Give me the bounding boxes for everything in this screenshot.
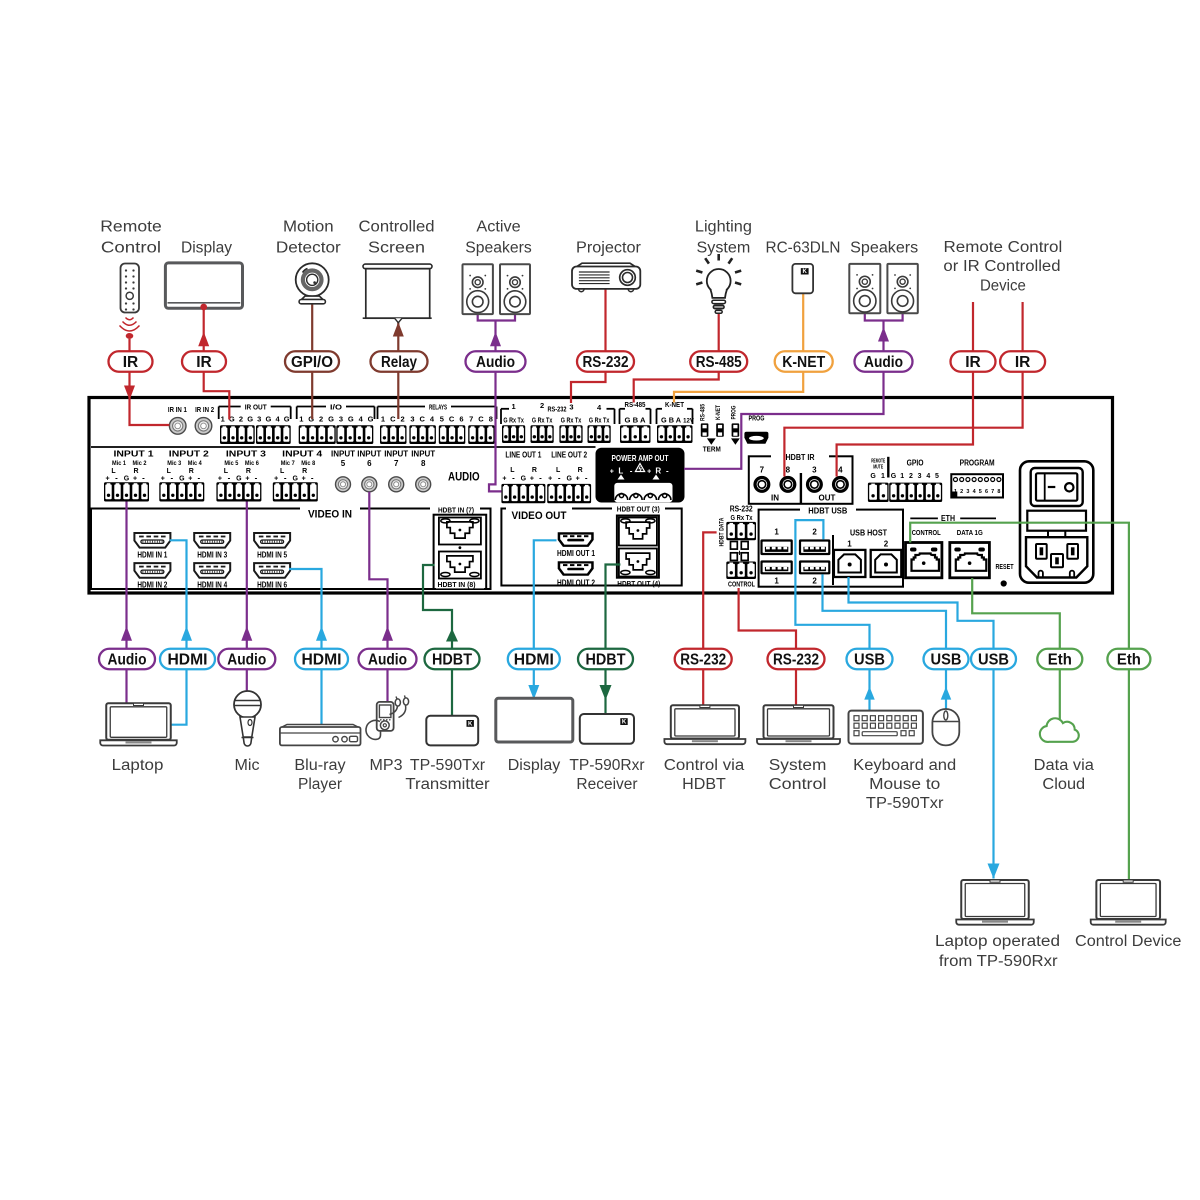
svg-text:8: 8 (421, 459, 426, 468)
svg-text:2: 2 (401, 414, 405, 423)
svg-text:L: L (618, 467, 623, 476)
svg-text:HDMI: HDMI (168, 651, 208, 668)
svg-text:RS-485: RS-485 (696, 354, 742, 371)
svg-text:INPUT 4: INPUT 4 (282, 450, 323, 459)
svg-text:1: 1 (381, 414, 385, 423)
svg-text:Mic 4: Mic 4 (188, 460, 202, 467)
svg-text:4: 4 (838, 466, 843, 475)
svg-text:USB: USB (978, 651, 1009, 668)
svg-text:HDBT DATA: HDBT DATA (720, 517, 726, 547)
svg-text:1: 1 (774, 577, 779, 586)
svg-text:K: K (803, 269, 808, 275)
svg-text:K: K (622, 720, 627, 726)
svg-text:-: - (666, 467, 669, 476)
svg-text:or IR Controlled: or IR Controlled (943, 258, 1060, 275)
svg-text:-: - (170, 473, 173, 482)
svg-text:Mic 8: Mic 8 (301, 460, 315, 467)
svg-text:HDMI IN 1: HDMI IN 1 (137, 551, 167, 560)
svg-text:5: 5 (979, 489, 982, 495)
svg-text:INPUT 3: INPUT 3 (226, 450, 267, 459)
svg-text:2: 2 (540, 401, 544, 410)
svg-text:2: 2 (239, 414, 243, 423)
svg-text:Control via: Control via (664, 757, 745, 774)
svg-text:1: 1 (881, 473, 885, 480)
svg-text:HDMI IN 3: HDMI IN 3 (197, 551, 227, 560)
svg-text:POWER AMP OUT: POWER AMP OUT (612, 453, 670, 463)
svg-text:1: 1 (512, 402, 516, 411)
svg-text:OUT: OUT (819, 494, 836, 503)
svg-text:Audio: Audio (476, 354, 515, 371)
svg-text:VIDEO OUT: VIDEO OUT (512, 510, 567, 522)
svg-text:2: 2 (812, 528, 817, 537)
svg-text:3: 3 (569, 403, 573, 412)
svg-text:C: C (390, 414, 396, 423)
svg-text:HDBT: HDBT (682, 776, 726, 793)
svg-text:INPUT 1: INPUT 1 (114, 450, 155, 459)
svg-text:I/O: I/O (330, 402, 342, 411)
svg-text:-: - (512, 473, 515, 482)
svg-text:+: + (161, 475, 165, 482)
svg-text:TP-590Rxr: TP-590Rxr (569, 757, 644, 774)
svg-text:Mic 3: Mic 3 (167, 460, 181, 467)
svg-text:G: G (284, 414, 290, 423)
svg-text:HDBT: HDBT (586, 651, 626, 668)
svg-text:IN: IN (771, 494, 779, 503)
svg-text:Receiver: Receiver (576, 776, 637, 793)
svg-text:3: 3 (812, 466, 817, 475)
svg-text:G: G (292, 475, 298, 482)
svg-text:+: + (245, 475, 249, 482)
svg-text:IR IN 2: IR IN 2 (195, 407, 214, 414)
svg-text:Data via: Data via (1034, 757, 1095, 774)
svg-text:5: 5 (341, 459, 346, 468)
svg-text:HDBT IR: HDBT IR (786, 453, 815, 462)
svg-text:PROGRAM: PROGRAM (960, 458, 995, 467)
svg-text:-: - (630, 467, 633, 476)
svg-text:GPIO: GPIO (907, 458, 924, 467)
svg-text:IR: IR (965, 354, 981, 371)
svg-text:R: R (246, 468, 251, 475)
svg-text:INPUT 2: INPUT 2 (169, 450, 210, 459)
svg-text:RS-485: RS-485 (625, 400, 646, 409)
svg-text:Lighting: Lighting (695, 219, 752, 236)
svg-text:Mouse to: Mouse to (869, 776, 940, 793)
svg-text:INPUT: INPUT (331, 450, 355, 459)
svg-text:3: 3 (339, 414, 343, 423)
svg-text:Control: Control (101, 240, 161, 257)
svg-text:HDBT IN (8): HDBT IN (8) (438, 580, 476, 589)
svg-text:Laptop operated: Laptop operated (935, 933, 1060, 950)
svg-text:RS-232: RS-232 (548, 405, 567, 414)
svg-text:Speakers: Speakers (465, 240, 532, 257)
svg-text:7: 7 (469, 414, 473, 423)
svg-text:-: - (197, 473, 200, 482)
svg-text:CONTROL: CONTROL (728, 580, 755, 589)
svg-text:K: K (468, 721, 473, 727)
svg-text:RS-232: RS-232 (773, 651, 819, 668)
svg-text:LINE OUT 1: LINE OUT 1 (505, 449, 541, 459)
svg-text:Projector: Projector (576, 240, 641, 257)
svg-text:-: - (228, 473, 231, 482)
svg-text:IR IN 1: IR IN 1 (168, 407, 187, 414)
svg-text:C: C (478, 414, 484, 423)
svg-text:Mic 2: Mic 2 (133, 460, 147, 467)
svg-text:Control Device: Control Device (1075, 933, 1181, 950)
svg-text:-: - (585, 473, 588, 482)
svg-text:G: G (521, 475, 527, 482)
svg-text:HDBT: HDBT (432, 651, 472, 668)
svg-text:-: - (142, 473, 145, 482)
svg-text:6: 6 (459, 414, 463, 423)
svg-text:Mic 7: Mic 7 (281, 460, 295, 467)
svg-text:+: + (647, 469, 651, 476)
svg-text:HDMI OUT 1: HDMI OUT 1 (557, 549, 595, 558)
svg-text:12V: 12V (683, 418, 694, 424)
svg-text:IR OUT: IR OUT (245, 402, 267, 411)
svg-text:HDMI IN 5: HDMI IN 5 (257, 551, 287, 560)
svg-text:2: 2 (909, 473, 913, 480)
svg-text:G: G (328, 414, 334, 423)
svg-text:+: + (548, 475, 552, 482)
svg-text:R: R (532, 467, 537, 474)
svg-text:Mic: Mic (235, 757, 260, 774)
svg-text:IR: IR (196, 354, 212, 371)
svg-text:RS-232: RS-232 (583, 354, 629, 371)
svg-text:HDMI IN 2: HDMI IN 2 (137, 581, 167, 590)
svg-text:MP3: MP3 (370, 757, 403, 774)
svg-text:G Rx Tx: G Rx Tx (731, 513, 754, 522)
svg-text:Audio: Audio (368, 651, 407, 668)
svg-text:K-NET: K-NET (782, 354, 825, 371)
svg-text:Player: Player (298, 776, 342, 793)
svg-text:Mic 6: Mic 6 (245, 460, 259, 467)
svg-text:IR: IR (1015, 354, 1031, 371)
svg-text:G Rx Tx: G Rx Tx (561, 417, 582, 424)
svg-text:6: 6 (985, 489, 988, 495)
svg-text:Relay: Relay (381, 354, 417, 371)
svg-text:Mic 5: Mic 5 (224, 460, 238, 467)
svg-text:8: 8 (786, 466, 791, 475)
svg-text:RS-485: RS-485 (700, 404, 707, 421)
svg-text:G: G (247, 414, 253, 423)
svg-text:+: + (133, 475, 137, 482)
svg-text:HDBT OUT (3): HDBT OUT (3) (617, 504, 660, 513)
svg-text:8: 8 (997, 489, 1000, 495)
svg-text:R: R (655, 467, 661, 476)
svg-text:Active: Active (476, 219, 520, 236)
svg-text:Eth: Eth (1117, 651, 1141, 668)
svg-text:G Rx Tx: G Rx Tx (589, 417, 610, 424)
svg-text:Remote: Remote (100, 219, 162, 236)
svg-text:HDMI IN 4: HDMI IN 4 (197, 581, 227, 590)
svg-text:3: 3 (918, 473, 922, 480)
svg-text:-: - (539, 473, 542, 482)
svg-text:System: System (697, 240, 751, 257)
svg-text:G: G (179, 475, 185, 482)
svg-text:Screen: Screen (368, 240, 425, 257)
svg-text:VIDEO IN: VIDEO IN (308, 508, 352, 520)
svg-text:HDMI OUT 2: HDMI OUT 2 (557, 578, 595, 587)
svg-text:INPUT: INPUT (357, 450, 381, 459)
svg-text:1: 1 (847, 540, 852, 549)
svg-text:7: 7 (394, 459, 399, 468)
svg-text:+: + (576, 475, 580, 482)
svg-text:R: R (133, 468, 138, 475)
svg-text:DATA 1G: DATA 1G (957, 528, 983, 537)
svg-text:-: - (558, 473, 561, 482)
svg-text:RESET: RESET (996, 564, 1015, 571)
svg-text:G: G (891, 473, 897, 480)
svg-text:Cloud: Cloud (1042, 776, 1085, 793)
svg-text:+: + (610, 469, 614, 476)
svg-text:K-NET: K-NET (715, 405, 722, 420)
svg-text:Speakers: Speakers (850, 240, 918, 257)
svg-text:G: G (566, 475, 572, 482)
svg-text:-: - (255, 473, 258, 482)
svg-text:1: 1 (299, 414, 303, 423)
svg-text:TP-590Txr: TP-590Txr (866, 795, 944, 812)
svg-text:System: System (769, 757, 827, 774)
svg-text:Blu-ray: Blu-ray (294, 757, 346, 774)
svg-text:Audio: Audio (108, 651, 147, 668)
svg-text:TP-590Txr: TP-590Txr (410, 757, 485, 774)
svg-text:G: G (368, 414, 374, 423)
svg-text:2: 2 (812, 577, 817, 586)
svg-text:C: C (449, 414, 455, 423)
svg-text:Transmitter: Transmitter (405, 776, 489, 793)
svg-text:5: 5 (440, 414, 444, 423)
svg-text:G Rx Tx: G Rx Tx (503, 417, 524, 424)
svg-text:G: G (870, 473, 876, 480)
svg-text:G: G (348, 414, 354, 423)
svg-text:Audio: Audio (227, 651, 266, 668)
svg-text:6: 6 (367, 459, 372, 468)
svg-text:Display: Display (181, 240, 232, 257)
svg-text:USB: USB (854, 651, 885, 668)
svg-text:INPUT: INPUT (411, 450, 435, 459)
svg-text:IR: IR (123, 354, 139, 371)
svg-text:HDBT USB: HDBT USB (808, 506, 847, 516)
svg-text:2: 2 (884, 540, 889, 549)
svg-text:Detector: Detector (276, 240, 341, 257)
svg-text:G: G (236, 475, 242, 482)
svg-text:7: 7 (991, 489, 994, 495)
svg-text:HDBT OUT (4): HDBT OUT (4) (617, 579, 660, 588)
svg-text:+: + (105, 475, 109, 482)
svg-text:+: + (530, 475, 534, 482)
svg-text:3: 3 (257, 414, 261, 423)
svg-text:USB: USB (931, 651, 962, 668)
svg-text:2: 2 (960, 489, 963, 495)
svg-text:+: + (274, 475, 278, 482)
svg-text:from TP-590Rxr: from TP-590Rxr (939, 953, 1058, 970)
svg-text:5: 5 (935, 473, 939, 480)
svg-text:+: + (218, 475, 222, 482)
svg-text:1: 1 (221, 414, 225, 423)
svg-text:R: R (578, 467, 583, 474)
svg-text:G Rx Tx: G Rx Tx (532, 417, 553, 424)
svg-text:+: + (502, 475, 506, 482)
svg-text:LINE OUT 2: LINE OUT 2 (551, 449, 587, 459)
svg-text:+: + (188, 475, 192, 482)
svg-text:R: R (302, 468, 307, 475)
svg-text:AUDIO: AUDIO (448, 472, 480, 484)
svg-text:HDBT IN (7): HDBT IN (7) (438, 505, 474, 514)
svg-text:Mic 1: Mic 1 (112, 460, 126, 467)
svg-text:ETH: ETH (941, 513, 955, 523)
svg-text:1: 1 (900, 473, 904, 480)
svg-text:C: C (419, 414, 425, 423)
svg-text:-: - (284, 473, 287, 482)
svg-text:+: + (302, 475, 306, 482)
svg-text:G B A: G B A (625, 417, 646, 424)
svg-text:G: G (124, 475, 130, 482)
svg-text:-: - (311, 473, 314, 482)
svg-text:G B A: G B A (661, 417, 681, 424)
svg-text:3: 3 (410, 414, 414, 423)
svg-text:MUTE: MUTE (873, 465, 883, 471)
svg-text:8: 8 (489, 414, 493, 423)
svg-text:Motion: Motion (283, 219, 334, 236)
svg-text:Laptop: Laptop (112, 757, 164, 774)
svg-text:7: 7 (760, 466, 765, 475)
svg-text:Remote Control: Remote Control (944, 239, 1063, 256)
svg-text:-: - (115, 473, 118, 482)
svg-text:RELAYS: RELAYS (429, 402, 447, 411)
svg-text:Audio: Audio (864, 354, 903, 371)
svg-text:Keyboard and: Keyboard and (853, 757, 956, 774)
svg-text:HDMI: HDMI (302, 651, 342, 668)
svg-text:1: 1 (774, 528, 779, 537)
svg-text:HDMI: HDMI (514, 651, 554, 668)
svg-text:Device: Device (980, 277, 1026, 294)
svg-text:RC-63DLN: RC-63DLN (766, 240, 841, 257)
svg-text:Control: Control (769, 776, 827, 793)
svg-text:Eth: Eth (1048, 651, 1072, 668)
svg-text:INPUT: INPUT (384, 450, 408, 459)
svg-text:4: 4 (926, 473, 930, 480)
svg-text:USB HOST: USB HOST (850, 527, 888, 537)
svg-text:RS-232: RS-232 (680, 651, 726, 668)
svg-text:TERM: TERM (703, 445, 721, 454)
svg-text:G: G (265, 414, 271, 423)
svg-text:PROG: PROG (730, 406, 737, 420)
svg-text:Controlled: Controlled (359, 219, 435, 236)
svg-text:HDMI IN 6: HDMI IN 6 (257, 581, 287, 590)
svg-text:3: 3 (966, 489, 969, 495)
svg-text:GPI/O: GPI/O (291, 354, 333, 371)
svg-text:Display: Display (508, 757, 561, 774)
svg-text:2: 2 (319, 414, 323, 423)
svg-text:CONTROL: CONTROL (912, 528, 941, 537)
svg-text:R: R (189, 468, 194, 475)
